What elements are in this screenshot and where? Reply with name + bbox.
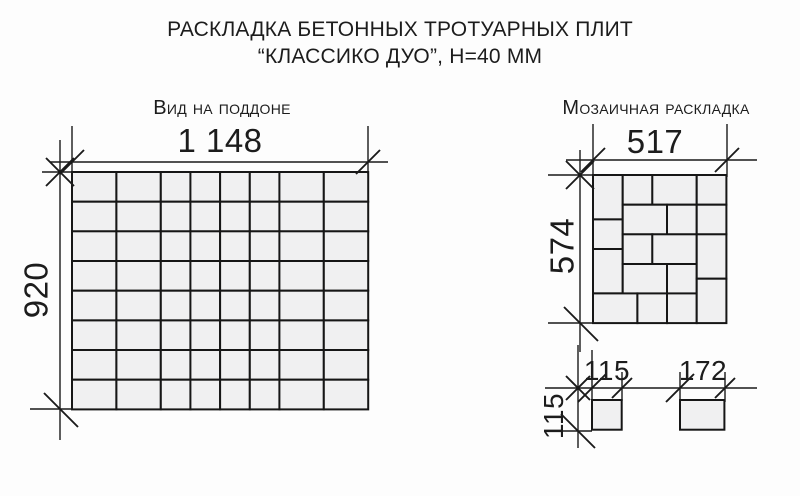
mosaic-tile — [667, 205, 697, 235]
plate-size-samples — [592, 400, 724, 430]
pallet-tile — [190, 380, 220, 410]
pallet-tile — [190, 320, 220, 350]
pallet-tile-grid — [72, 172, 368, 409]
pallet-tile — [279, 172, 323, 202]
pallet-tile — [324, 320, 368, 350]
pallet-tile — [190, 202, 220, 232]
pallet-tile — [190, 261, 220, 291]
pallet-tile — [250, 350, 280, 380]
mosaic-tile — [593, 293, 637, 323]
small-plate-sample — [592, 400, 622, 430]
pallet-tile — [250, 380, 280, 410]
pallet-tile — [220, 261, 250, 291]
drawing-sheet: РАСКЛАДКА БЕТОННЫХ ТРОТУАРНЫХ ПЛИТ “КЛАС… — [0, 0, 800, 496]
mosaic-tile — [593, 175, 623, 219]
layout-drawing: РАСКЛАДКА БЕТОННЫХ ТРОТУАРНЫХ ПЛИТ “КЛАС… — [0, 0, 800, 496]
mosaic-tile — [623, 234, 653, 264]
pallet-tile — [220, 320, 250, 350]
sheet-title-line1: РАСКЛАДКА БЕТОННЫХ ТРОТУАРНЫХ ПЛИТ — [167, 18, 633, 41]
pallet-tile — [116, 231, 160, 261]
pallet-tile — [250, 320, 280, 350]
pallet-tile — [324, 291, 368, 321]
sheet-title-line2: “КЛАССИКО ДУО”, Н=40 ММ — [258, 45, 542, 68]
mosaic-tile — [697, 234, 727, 278]
pallet-tile — [116, 172, 160, 202]
pallet-tile — [116, 261, 160, 291]
mosaic-tile — [593, 219, 623, 249]
pallet-tile — [72, 320, 116, 350]
pallet-tile — [324, 172, 368, 202]
pallet-height-dimension: 920 — [18, 262, 55, 319]
pallet-tile — [324, 261, 368, 291]
pallet-tile — [250, 172, 280, 202]
mosaic-tile — [623, 175, 653, 205]
mosaic-tile — [697, 175, 727, 205]
mosaic-tile — [652, 234, 696, 264]
pallet-tile — [324, 231, 368, 261]
pallet-tile — [190, 291, 220, 321]
mosaic-tile — [667, 293, 697, 323]
pallet-tile — [250, 202, 280, 232]
pallet-tile — [190, 231, 220, 261]
pallet-tile — [324, 350, 368, 380]
pallet-tile — [250, 231, 280, 261]
pallet-tile — [161, 350, 191, 380]
pallet-tile — [279, 291, 323, 321]
mosaic-height-dimension: 574 — [544, 218, 581, 275]
pallet-tile — [161, 291, 191, 321]
mosaic-tile — [697, 279, 727, 323]
pallet-tile — [190, 350, 220, 380]
mosaic-tile — [623, 205, 667, 235]
mosaic-tile — [667, 264, 697, 294]
pallet-tile — [279, 261, 323, 291]
pallet-tile — [72, 291, 116, 321]
pallet-tile — [72, 261, 116, 291]
large-plate-sample — [680, 400, 724, 430]
pallet-tile — [220, 172, 250, 202]
pallet-tile — [190, 172, 220, 202]
small-plate-width-dimension: 115 — [584, 355, 630, 386]
pallet-tile — [161, 320, 191, 350]
mosaic-tile — [637, 293, 667, 323]
pallet-tile — [161, 172, 191, 202]
pallet-tile — [220, 202, 250, 232]
pallet-tile — [72, 350, 116, 380]
pallet-tile — [220, 380, 250, 410]
mosaic-width-dimension: 517 — [627, 123, 684, 160]
pallet-tile — [161, 380, 191, 410]
mosaic-tile-pattern — [593, 175, 726, 323]
pallet-tile — [279, 231, 323, 261]
small-plate-height-dimension: 115 — [538, 393, 569, 439]
pallet-tile — [72, 172, 116, 202]
pallet-tile — [324, 202, 368, 232]
pallet-tile — [72, 202, 116, 232]
pallet-tile — [72, 380, 116, 410]
mosaic-view-heading: Мозаичная раскладка — [562, 97, 750, 119]
pallet-width-dimension: 1 148 — [177, 122, 262, 159]
pallet-tile — [279, 350, 323, 380]
pallet-tile — [220, 231, 250, 261]
pallet-tile — [116, 380, 160, 410]
large-plate-width-dimension: 172 — [679, 355, 727, 386]
pallet-tile — [250, 291, 280, 321]
pallet-tile — [279, 202, 323, 232]
pallet-tile — [161, 231, 191, 261]
pallet-tile — [279, 320, 323, 350]
mosaic-tile — [697, 205, 727, 235]
pallet-tile — [116, 291, 160, 321]
pallet-tile — [116, 202, 160, 232]
pallet-tile — [324, 380, 368, 410]
pallet-view-heading: Вид на поддоне — [153, 97, 291, 119]
mosaic-tile — [652, 175, 696, 205]
pallet-tile — [161, 202, 191, 232]
mosaic-tile — [593, 249, 623, 293]
pallet-tile — [116, 350, 160, 380]
pallet-tile — [116, 320, 160, 350]
pallet-tile — [220, 291, 250, 321]
pallet-tile — [161, 261, 191, 291]
pallet-tile — [250, 261, 280, 291]
pallet-tile — [279, 380, 323, 410]
mosaic-tile — [623, 264, 667, 294]
pallet-tile — [220, 350, 250, 380]
pallet-tile — [72, 231, 116, 261]
